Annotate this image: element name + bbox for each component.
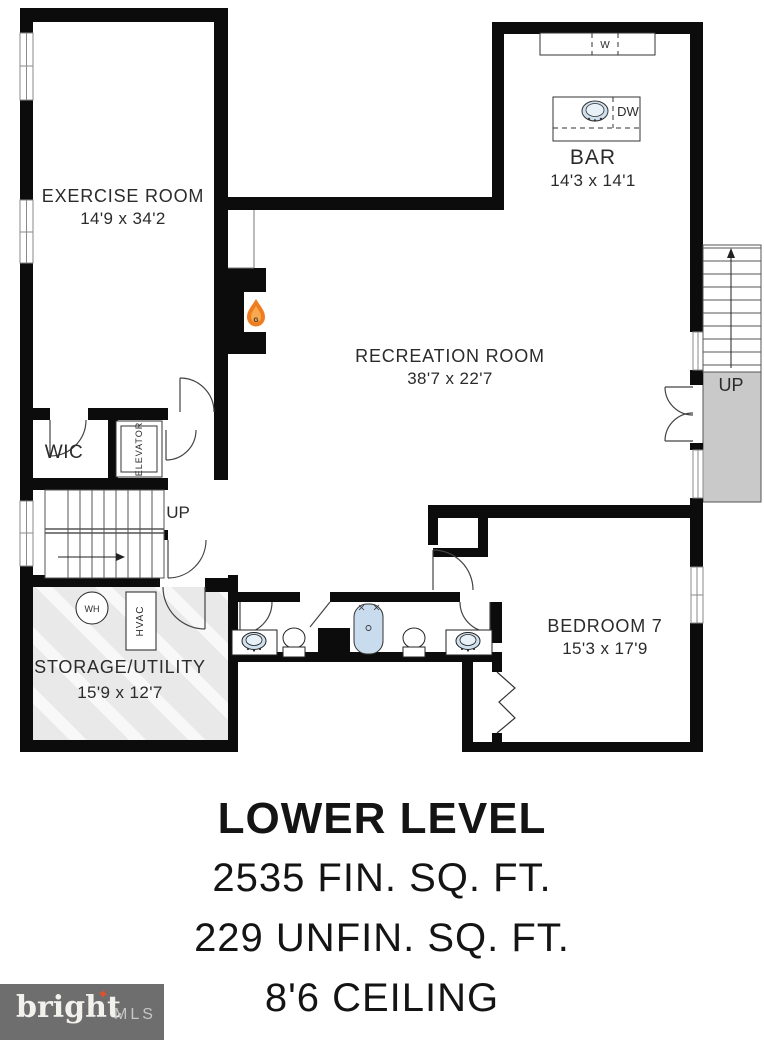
elevator: ELEVATOR bbox=[116, 421, 162, 477]
unfinished-sqft: 229 UNFIN. SQ. FT. bbox=[0, 916, 764, 961]
hvac-unit: HVAC bbox=[126, 592, 156, 650]
bathtub bbox=[354, 604, 383, 654]
recreation-room-dims: 38'7 x 22'7 bbox=[407, 369, 493, 388]
level-title: LOWER LEVEL bbox=[0, 794, 764, 844]
window bbox=[20, 33, 33, 100]
bar-label: BAR bbox=[570, 146, 616, 169]
tub-room-door bbox=[310, 602, 330, 627]
recreation-room-label: RECREATION ROOM bbox=[355, 346, 545, 366]
toilet-bowl bbox=[403, 628, 425, 648]
bedroom7-label: BEDROOM 7 bbox=[547, 616, 662, 636]
toilet-tank bbox=[283, 647, 305, 657]
elevator-label: ELEVATOR bbox=[134, 422, 144, 477]
floor-plan: G bbox=[0, 0, 764, 782]
window bbox=[693, 450, 703, 498]
toilet-bowl bbox=[283, 628, 305, 648]
stairs-left bbox=[45, 490, 164, 578]
bathroom-2 bbox=[403, 628, 492, 657]
finished-sqft: 2535 FIN. SQ. FT. bbox=[0, 856, 764, 901]
bright-mls-logo: bright ✦ MLS bbox=[0, 984, 164, 1040]
floorplan-page: { "plan": { "rooms": { "exercise": {"nam… bbox=[0, 0, 764, 1040]
bath2-door bbox=[460, 602, 490, 632]
logo-mls: MLS bbox=[114, 1006, 156, 1024]
bar-island: DW bbox=[553, 97, 640, 141]
window bbox=[20, 501, 33, 566]
gas-label: G bbox=[253, 317, 258, 324]
window bbox=[691, 567, 703, 623]
dishwasher-label: DW bbox=[617, 104, 639, 119]
wic-label: WIC bbox=[45, 442, 83, 463]
elevator-door bbox=[166, 430, 196, 460]
french-door-top bbox=[665, 387, 693, 415]
window bbox=[693, 332, 703, 370]
bath1-door bbox=[240, 602, 272, 634]
toilet-tank bbox=[403, 647, 425, 657]
french-door-bottom bbox=[665, 413, 693, 441]
exercise-door bbox=[180, 378, 214, 412]
exercise-room-label: EXERCISE ROOM bbox=[42, 186, 204, 206]
fireplace: G bbox=[244, 292, 266, 332]
stairs-right bbox=[703, 245, 761, 372]
exercise-room-dims: 14'9 x 34'2 bbox=[80, 209, 166, 228]
bathroom-1 bbox=[232, 628, 305, 657]
closet-bifold-door bbox=[497, 672, 515, 733]
bedroom7-dims: 15'3 x 17'9 bbox=[562, 639, 648, 658]
window bbox=[20, 200, 33, 263]
fireplace-niche bbox=[228, 210, 254, 268]
up-label-left: UP bbox=[166, 503, 190, 522]
up-label-right: UP bbox=[718, 375, 743, 395]
water-heater: WH bbox=[76, 592, 108, 624]
washer-label: W bbox=[600, 40, 610, 51]
storage-dims: 15'9 x 12'7 bbox=[77, 683, 163, 702]
hall-door bbox=[168, 540, 206, 578]
bar-counter: W bbox=[540, 33, 655, 55]
bar-dims: 14'3 x 14'1 bbox=[550, 171, 636, 190]
hvac-label: HVAC bbox=[135, 605, 146, 636]
water-heater-label: WH bbox=[85, 604, 100, 614]
storage-label: STORAGE/UTILITY bbox=[34, 657, 206, 677]
